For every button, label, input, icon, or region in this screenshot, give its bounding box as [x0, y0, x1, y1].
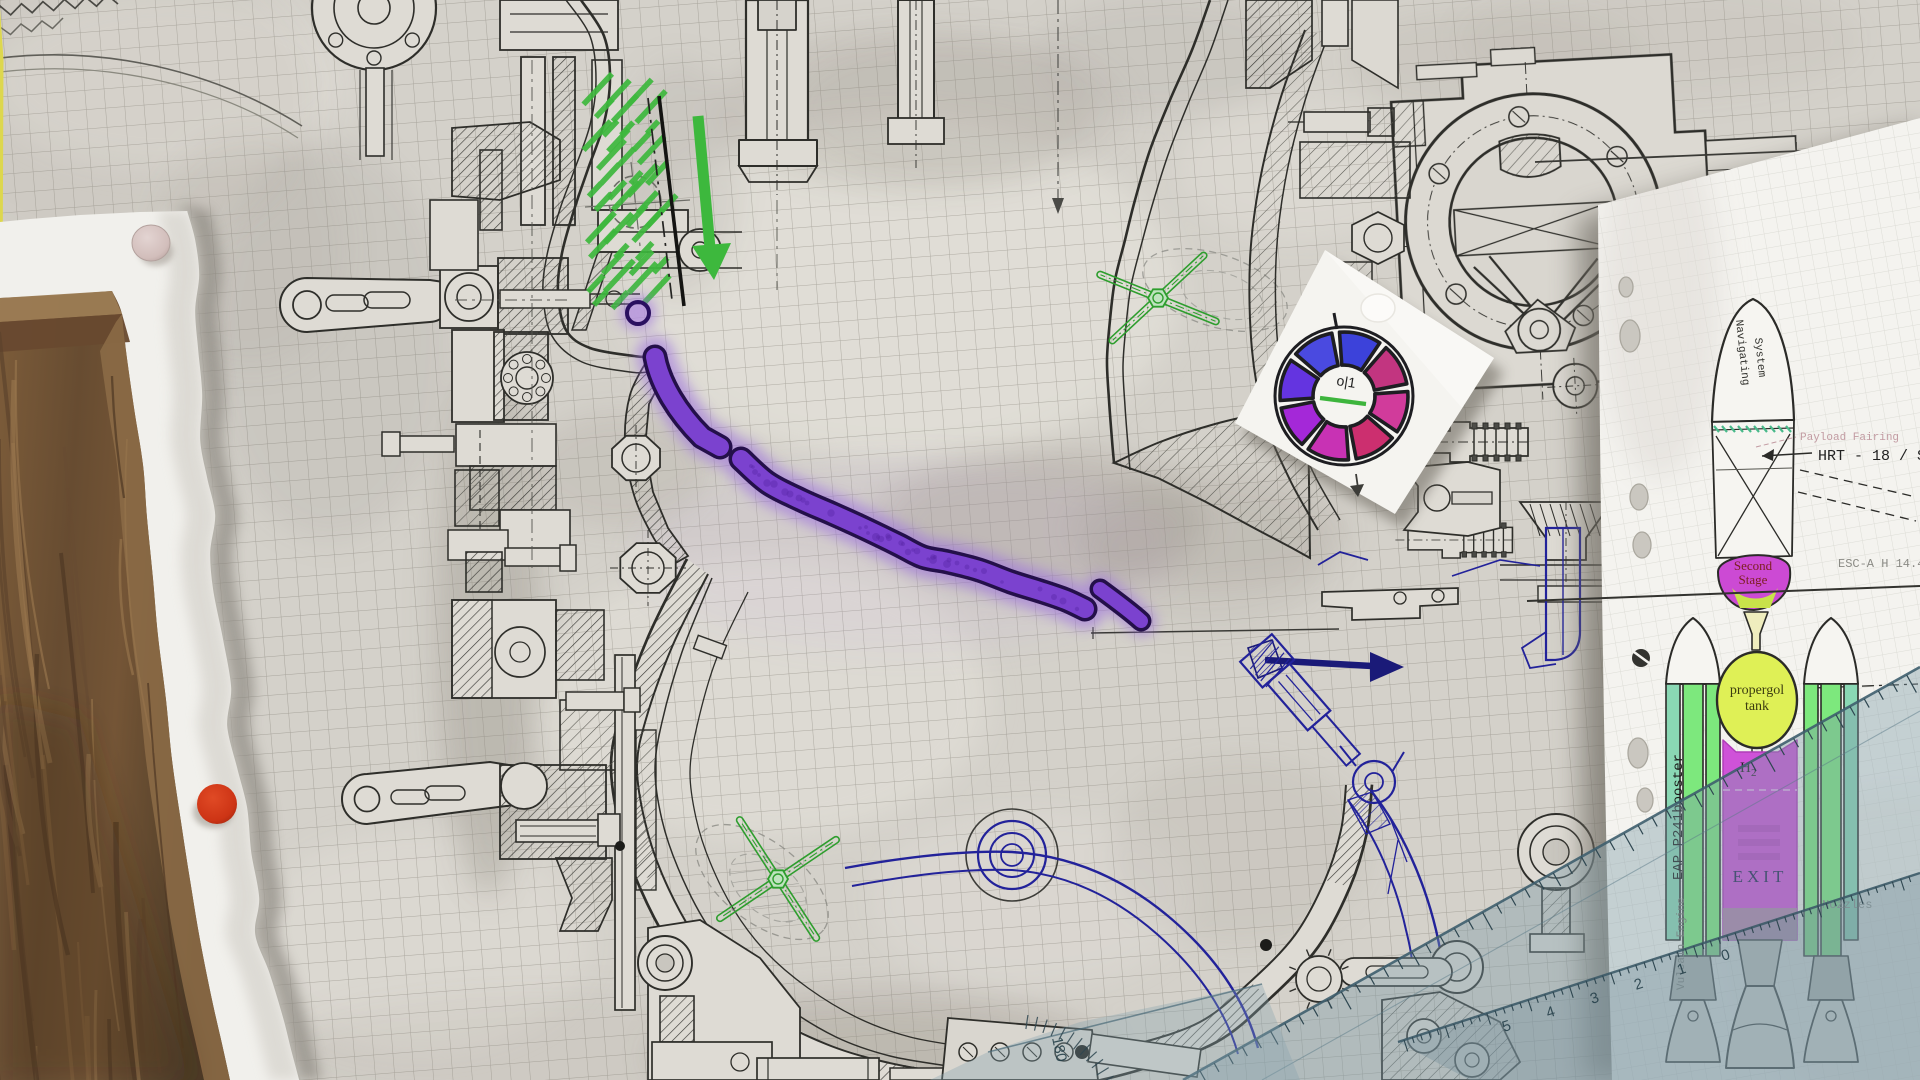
- svg-text:ESC-A H 14.4 Upper Sta: ESC-A H 14.4 Upper Sta: [1838, 557, 1920, 571]
- svg-text:tank: tank: [1745, 699, 1769, 714]
- svg-text:propergol: propergol: [1730, 683, 1784, 698]
- svg-text:Stage: Stage: [1739, 572, 1768, 587]
- svg-text:o|1: o|1: [1336, 372, 1358, 391]
- svg-text:HRT - 18 / Sat: HRT - 18 / Sat: [1818, 448, 1920, 465]
- svg-text:Payload Fairing: Payload Fairing: [1800, 432, 1899, 444]
- svg-text:Second: Second: [1734, 558, 1773, 573]
